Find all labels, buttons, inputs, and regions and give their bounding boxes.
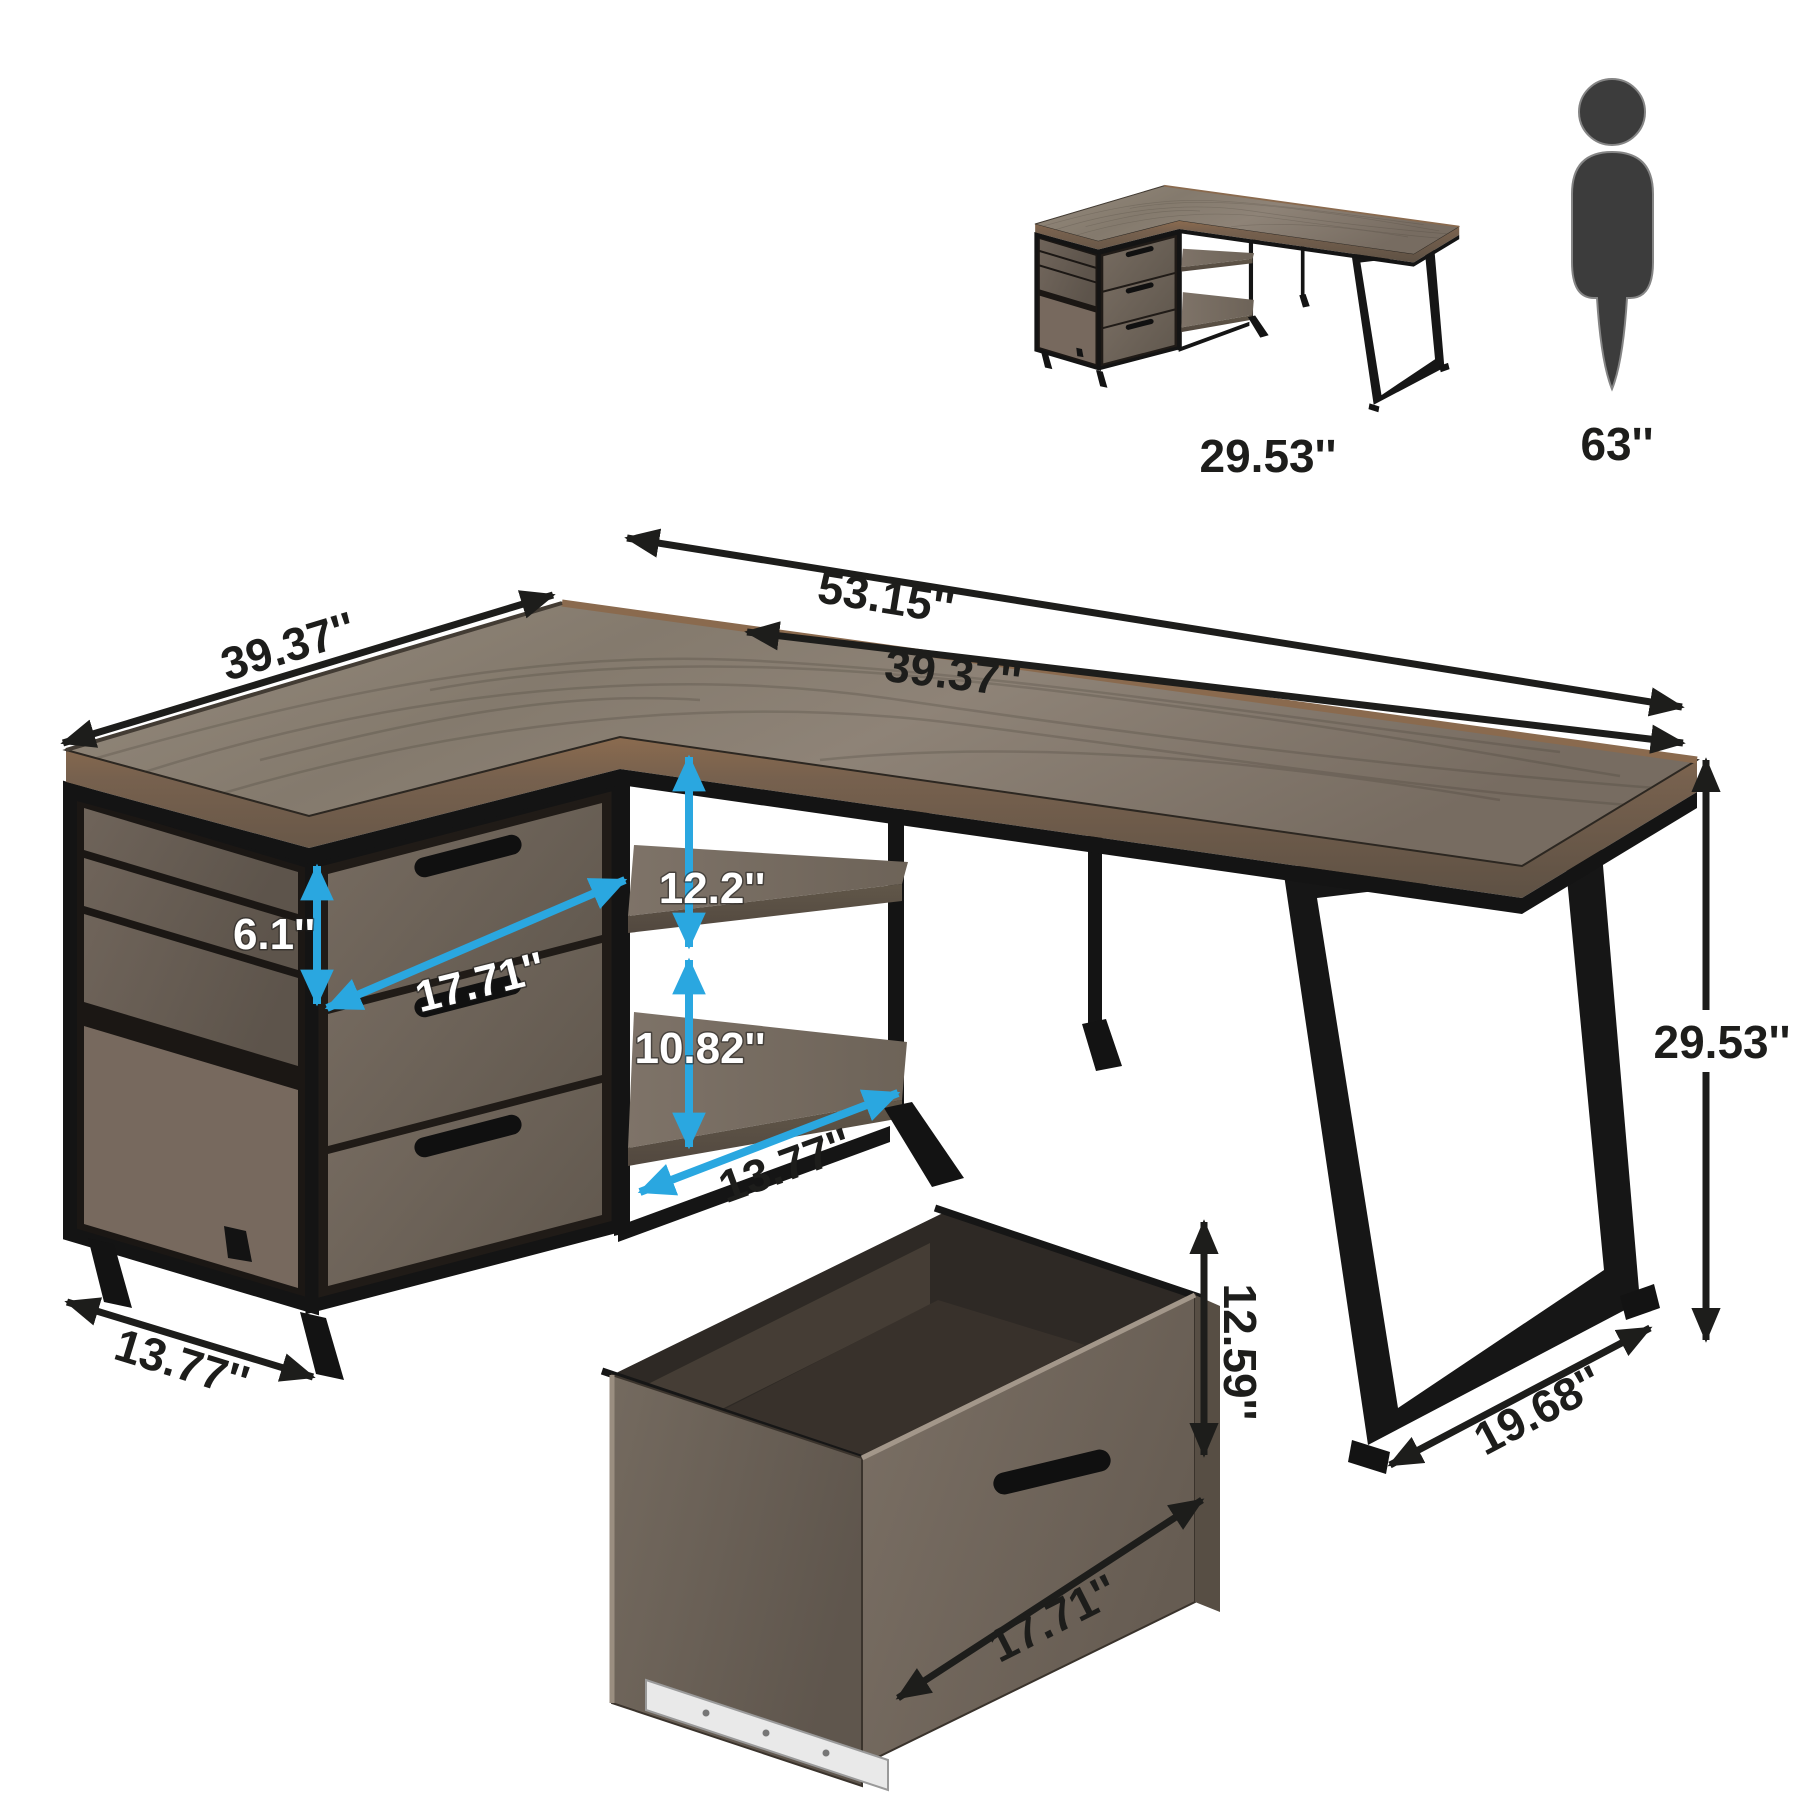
label-total-width: 53.15'' [814,560,958,633]
thumbnail-height-label: 29.53'' [1200,430,1337,482]
thumbnail-desk [1035,186,1459,412]
human-height-label: 63'' [1580,418,1653,470]
pulled-out-drawer [602,1208,1220,1790]
label-cabinet-depth: 13.77'' [109,1318,255,1408]
shelf-foot [884,1102,964,1187]
leg-foot-left [1348,1440,1390,1474]
shelf-post-left [614,777,630,1236]
human-figure-icon [1572,79,1653,389]
cabinet-front-drawers [312,783,618,1306]
label-top-drawer-height: 6.1'' [233,910,315,959]
desk-leg [1283,830,1660,1474]
rear-post-foot [1082,1019,1122,1071]
label-lower-shelf-gap: 10.82'' [634,1024,765,1073]
label-upper-shelf-gap: 12.2'' [659,864,766,913]
cabinet-left-panel [70,790,312,1306]
label-desk-height: 29.53'' [1654,1016,1791,1068]
label-drawer-height: 12.59'' [1214,1284,1266,1421]
diagram-canvas: 29.53'' 63'' 53.15'' 39.37'' 39.37'' 13.… [0,0,1800,1800]
product-dimension-diagram: 29.53'' 63'' 53.15'' 39.37'' 39.37'' 13.… [0,0,1800,1800]
